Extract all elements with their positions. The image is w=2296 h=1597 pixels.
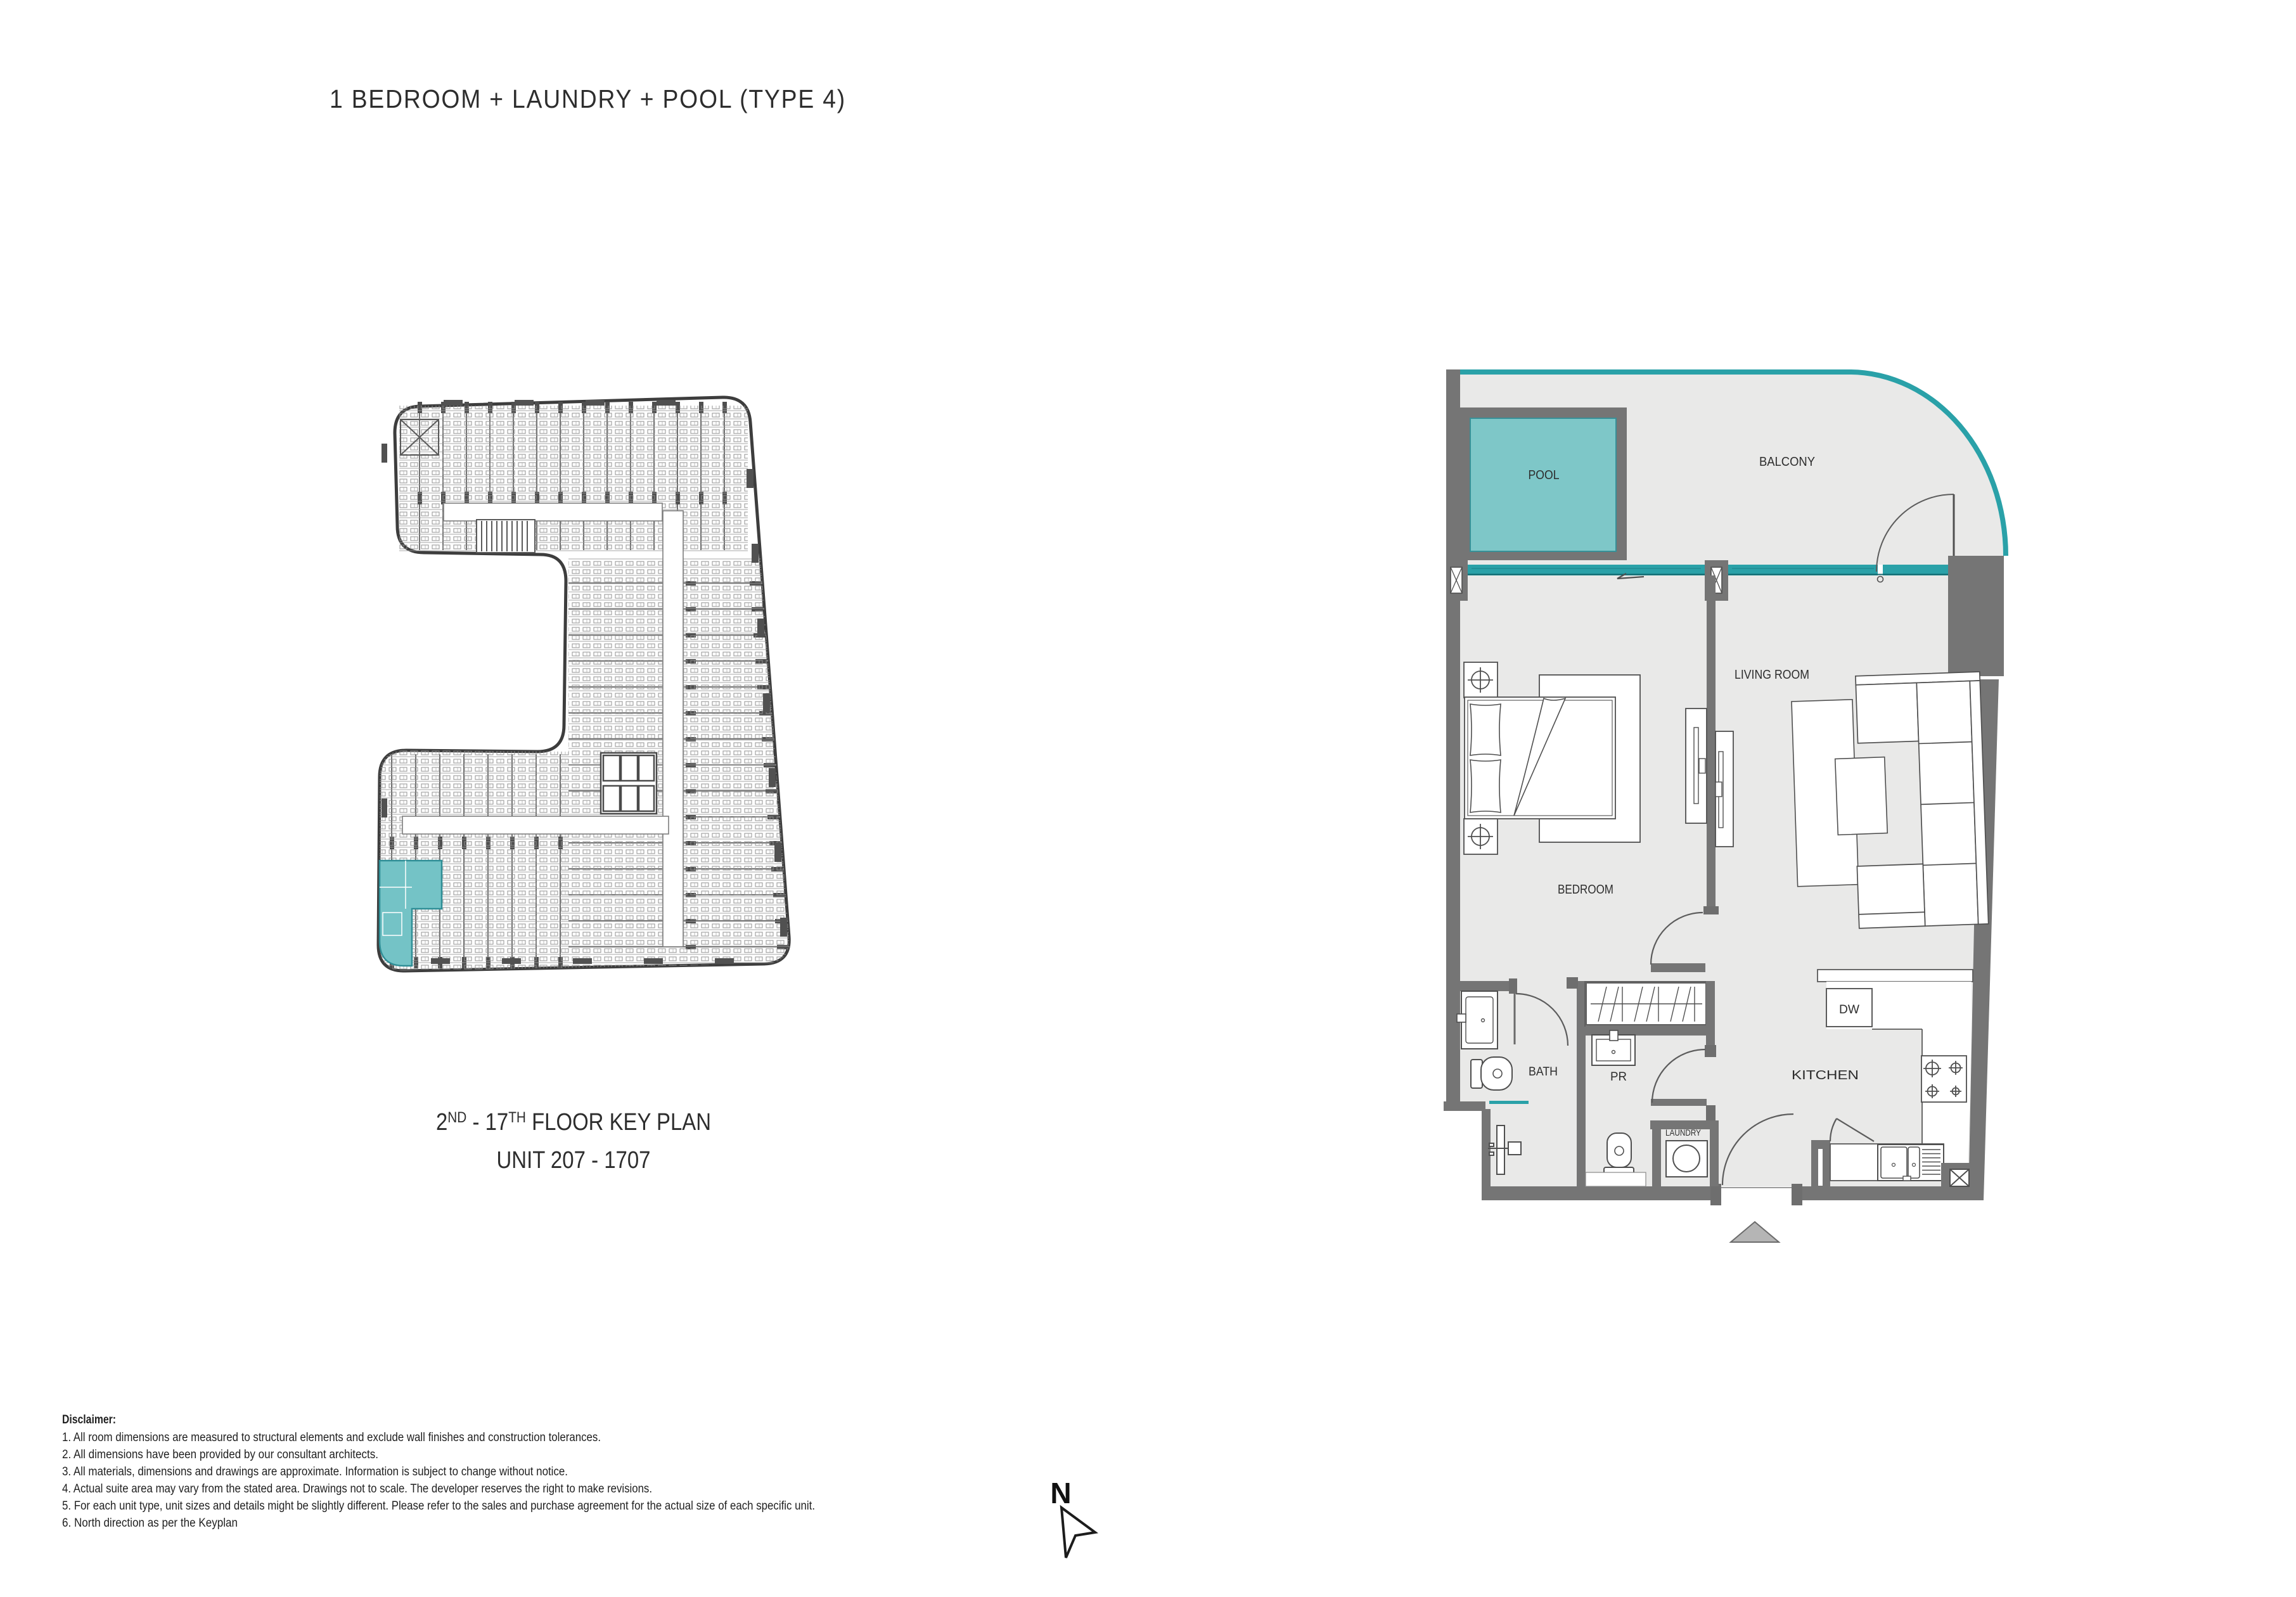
svg-text:LIVING ROOM: LIVING ROOM [1735,668,1809,682]
svg-text:5. For each unit type, unit si: 5. For each unit type, unit sizes and de… [62,1499,815,1513]
svg-text:BATH: BATH [1529,1065,1558,1079]
svg-text:1. All room dimensions are mea: 1. All room dimensions are measured to s… [62,1431,601,1444]
svg-text:DW: DW [1839,1003,1859,1017]
svg-text:LAUNDRY: LAUNDRY [1665,1127,1702,1138]
svg-text:3. All materials, dimensions a: 3. All materials, dimensions and drawing… [62,1465,568,1478]
svg-text:2ND - 17TH FLOOR KEY PLAN: 2ND - 17TH FLOOR KEY PLAN [436,1109,711,1136]
svg-text:N: N [1050,1477,1071,1510]
svg-text:2. All dimensions have been pr: 2. All dimensions have been provided by … [62,1448,378,1461]
svg-text:KITCHEN: KITCHEN [1792,1068,1859,1082]
svg-text:4. Actual suite area may vary: 4. Actual suite area may vary from the s… [62,1482,652,1496]
svg-text:POOL: POOL [1529,468,1560,482]
svg-text:PR: PR [1610,1070,1627,1084]
svg-text:6. North direction as per the: 6. North direction as per the Keyplan [62,1517,238,1530]
svg-text:BEDROOM: BEDROOM [1558,883,1613,897]
svg-text:BALCONY: BALCONY [1759,455,1815,469]
svg-text:UNIT 207 - 1707: UNIT 207 - 1707 [497,1147,651,1174]
svg-text:Disclaimer:: Disclaimer: [62,1413,116,1427]
svg-text:1 BEDROOM + LAUNDRY + POOL (TY: 1 BEDROOM + LAUNDRY + POOL (TYPE 4) [330,84,846,113]
